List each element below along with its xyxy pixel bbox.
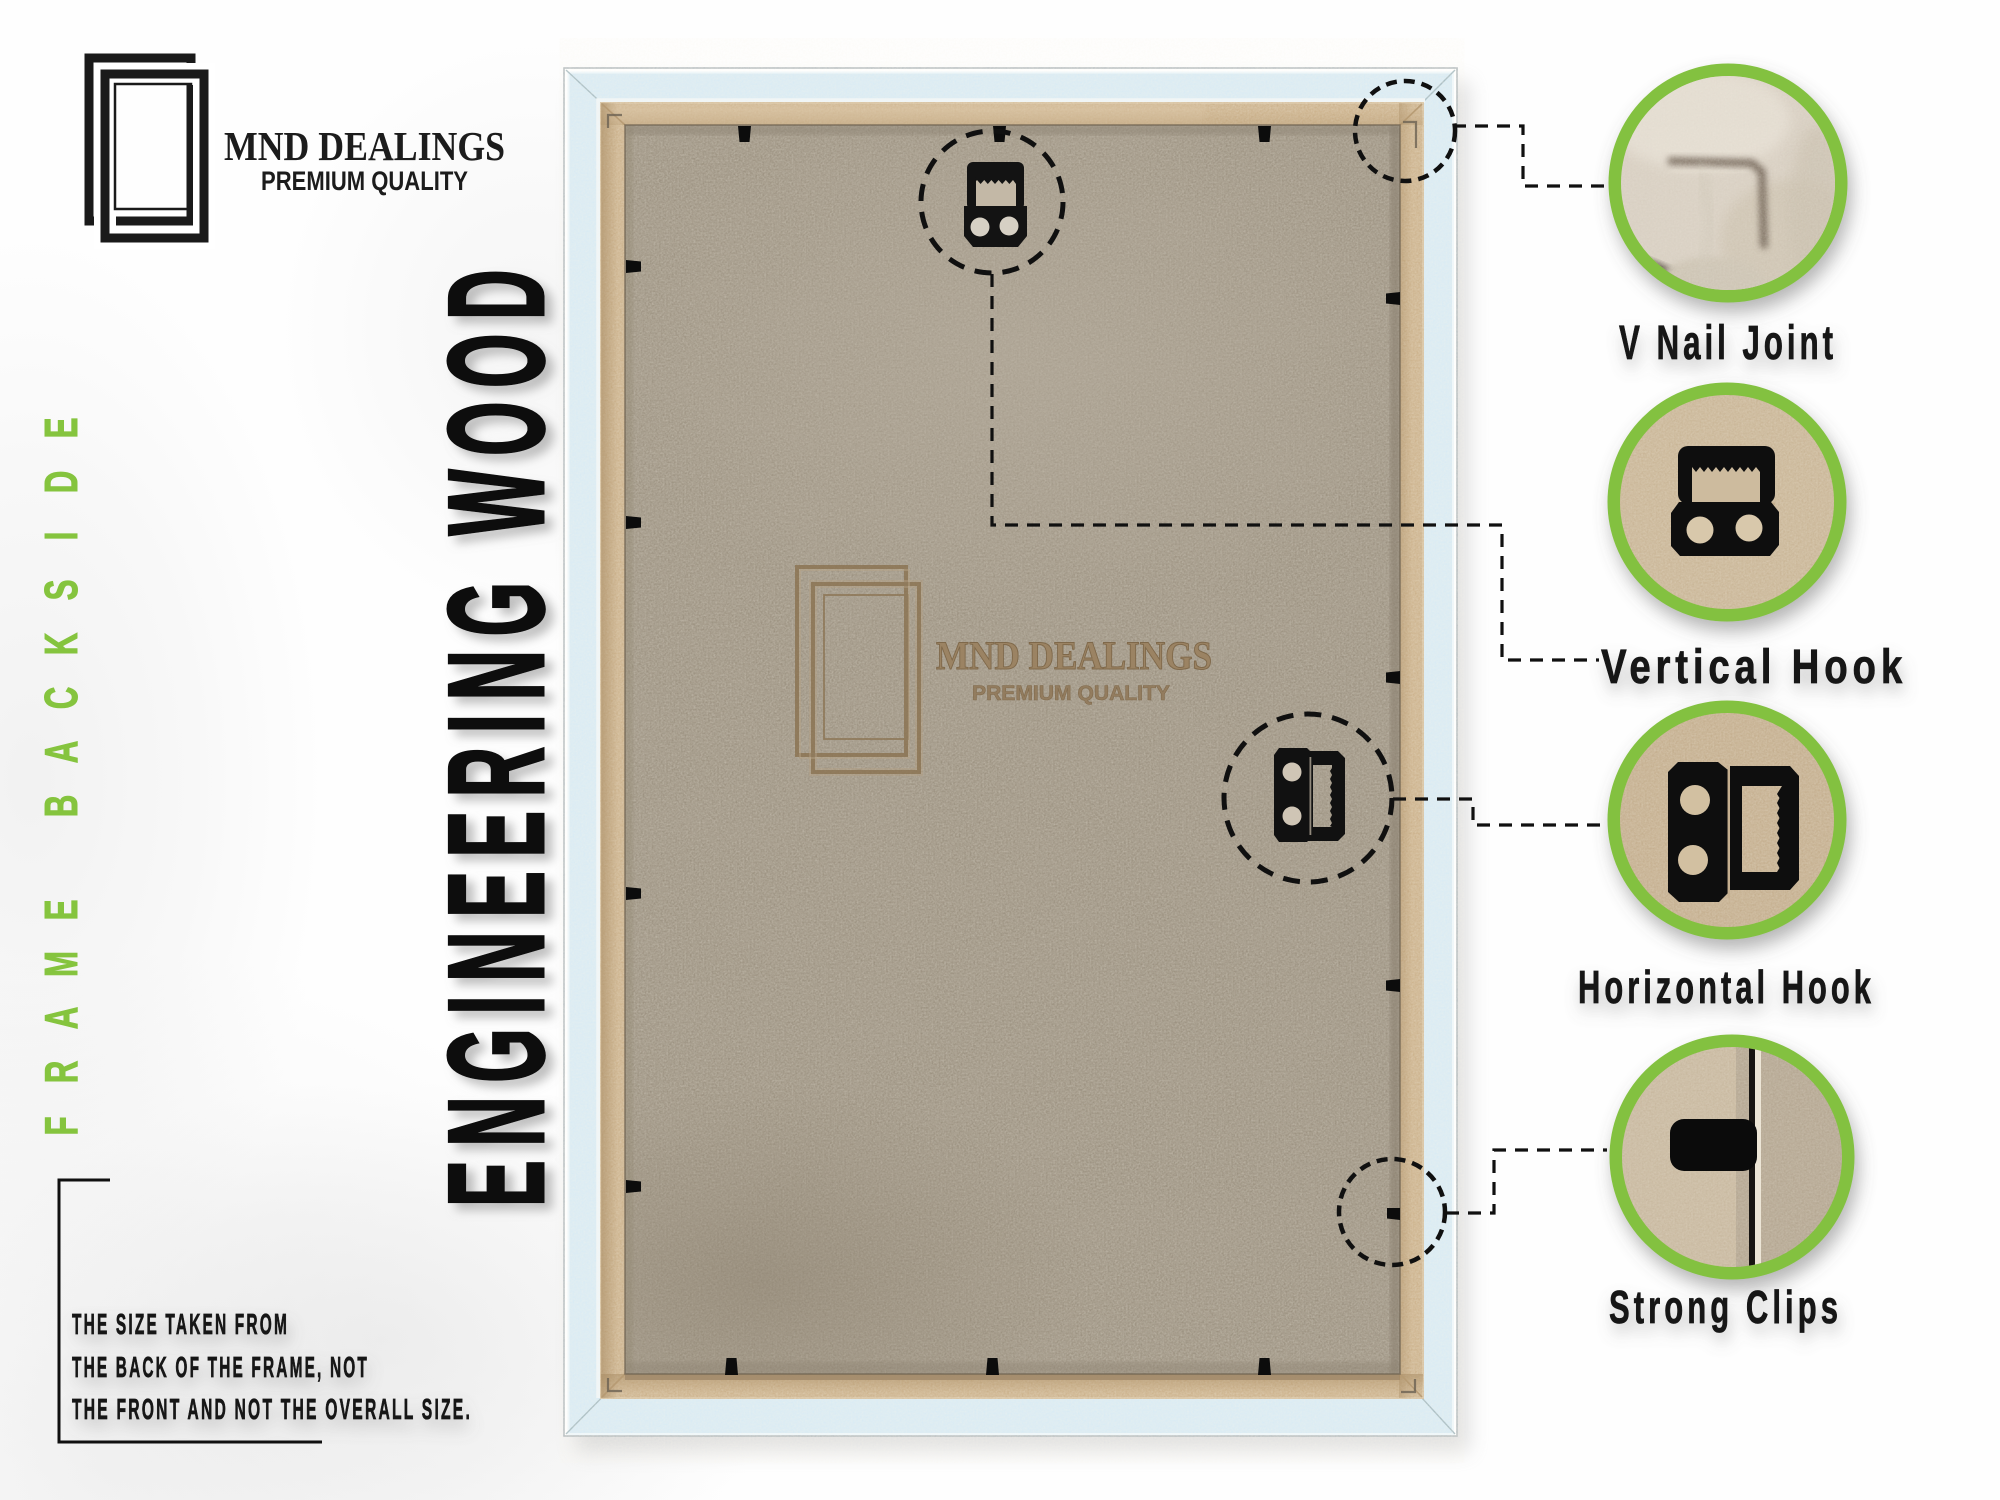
svg-text:I: I (36, 532, 87, 541)
svg-text:MND DEALINGS: MND DEALINGS (224, 123, 505, 169)
svg-text:D: D (36, 471, 87, 494)
svg-text:E: E (36, 900, 87, 921)
svg-text:F: F (36, 1116, 87, 1135)
svg-text:S: S (36, 580, 87, 601)
svg-text:PREMIUM QUALITY: PREMIUM QUALITY (261, 166, 468, 196)
svg-text:ENGINEERING WOOD: ENGINEERING WOOD (420, 256, 572, 1207)
svg-text:K: K (36, 632, 87, 655)
svg-text:PREMIUM QUALITY: PREMIUM QUALITY (972, 682, 1170, 705)
svg-text:MND DEALINGS: MND DEALINGS (936, 633, 1212, 678)
svg-text:A: A (36, 741, 87, 764)
svg-text:V Nail Joint: V Nail Joint (1619, 317, 1837, 370)
svg-text:Strong Clips: Strong Clips (1609, 1281, 1842, 1333)
svg-text:THE BACK OF THE FRAME, NOT: THE BACK OF THE FRAME, NOT (72, 1352, 369, 1384)
svg-text:C: C (36, 687, 87, 710)
svg-text:R: R (36, 1061, 87, 1084)
svg-text:E: E (36, 418, 87, 439)
svg-text:A: A (36, 1007, 87, 1030)
svg-text:THE FRONT AND NOT THE OVERALL: THE FRONT AND NOT THE OVERALL SIZE. (72, 1394, 472, 1426)
svg-text:THE SIZE TAKEN FROM: THE SIZE TAKEN FROM (72, 1309, 289, 1341)
svg-text:Horizontal Hook: Horizontal Hook (1578, 961, 1875, 1013)
svg-text:Vertical Hook: Vertical Hook (1601, 641, 1907, 694)
svg-text:B: B (36, 795, 87, 818)
svg-text:M: M (36, 951, 87, 977)
